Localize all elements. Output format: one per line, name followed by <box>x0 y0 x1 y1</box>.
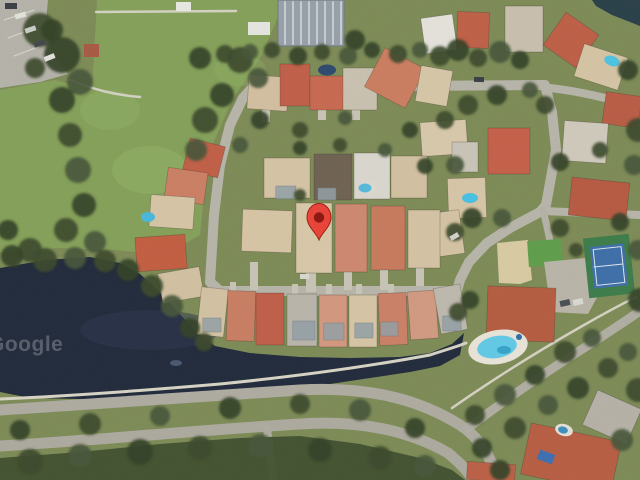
satellite-map[interactable]: Google <box>0 0 640 480</box>
satellite-imagery <box>0 0 640 480</box>
imagery-texture <box>0 0 640 480</box>
